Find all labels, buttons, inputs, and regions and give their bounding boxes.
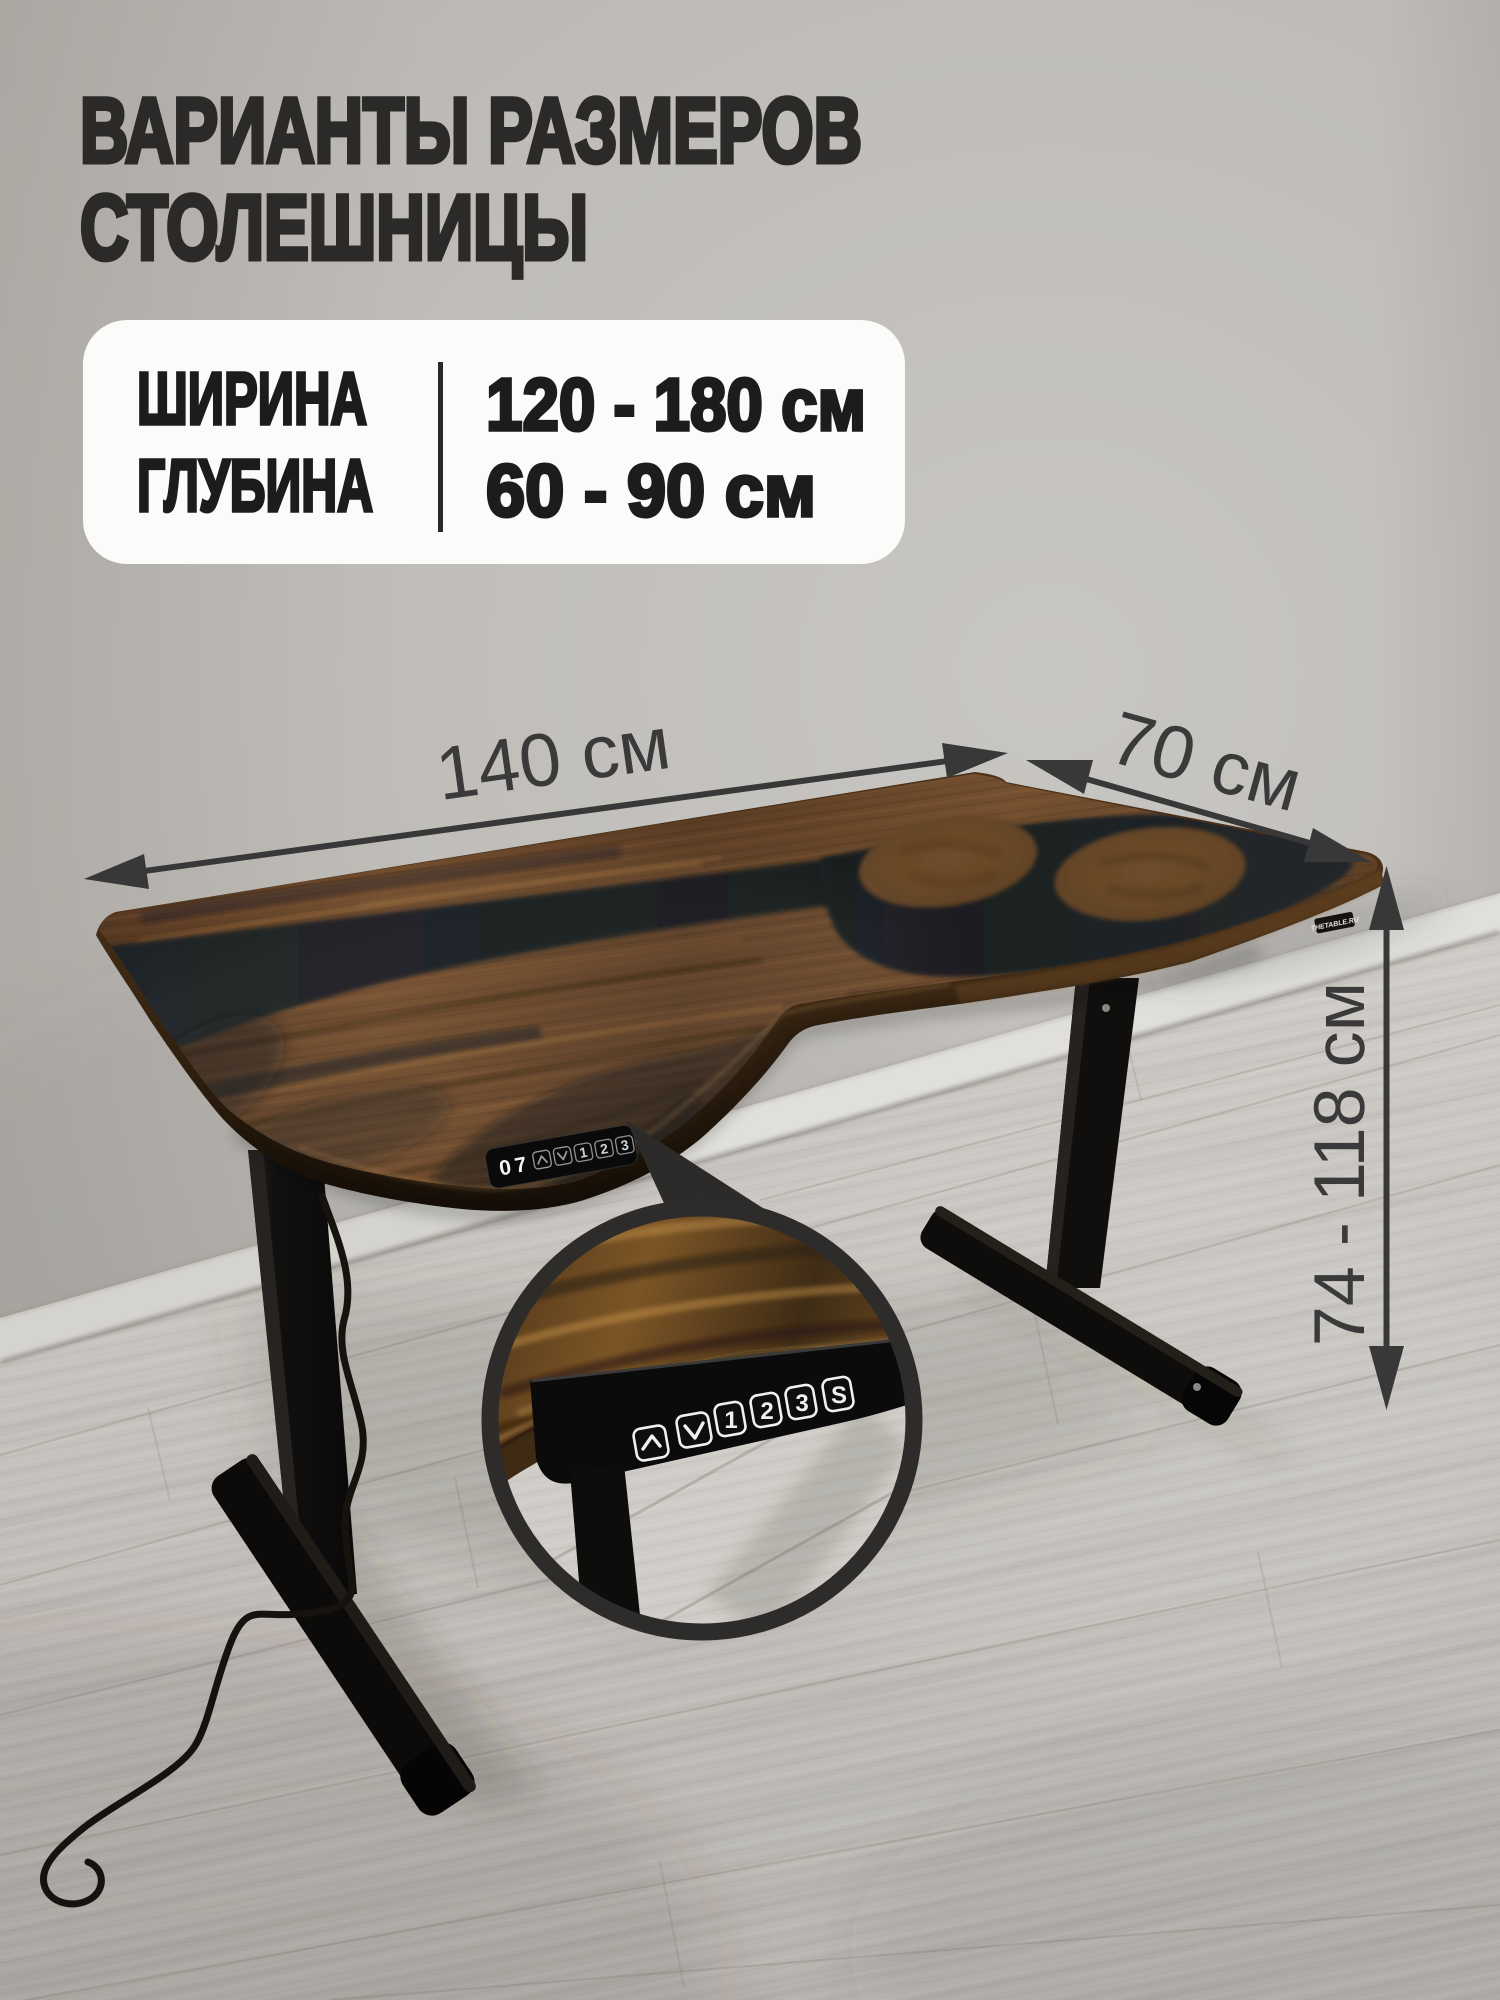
svg-text:2: 2 [760,1398,773,1425]
svg-text:ВАРИАНТЫ РАЗМЕРОВ: ВАРИАНТЫ РАЗМЕРОВ [80,80,862,182]
svg-text:1: 1 [724,1407,737,1434]
svg-text:74 - 118 см: 74 - 118 см [1300,982,1380,1346]
svg-text:СТОЛЕШНИЦЫ: СТОЛЕШНИЦЫ [80,177,588,279]
svg-text:3: 3 [795,1390,808,1417]
svg-text:S: S [831,1382,847,1409]
svg-text:ШИРИНА: ШИРИНА [137,357,367,440]
svg-text:120 - 180 см: 120 - 180 см [486,363,866,446]
svg-text:60 - 90 см: 60 - 90 см [486,449,816,532]
svg-text:ГЛУБИНА: ГЛУБИНА [137,444,373,527]
